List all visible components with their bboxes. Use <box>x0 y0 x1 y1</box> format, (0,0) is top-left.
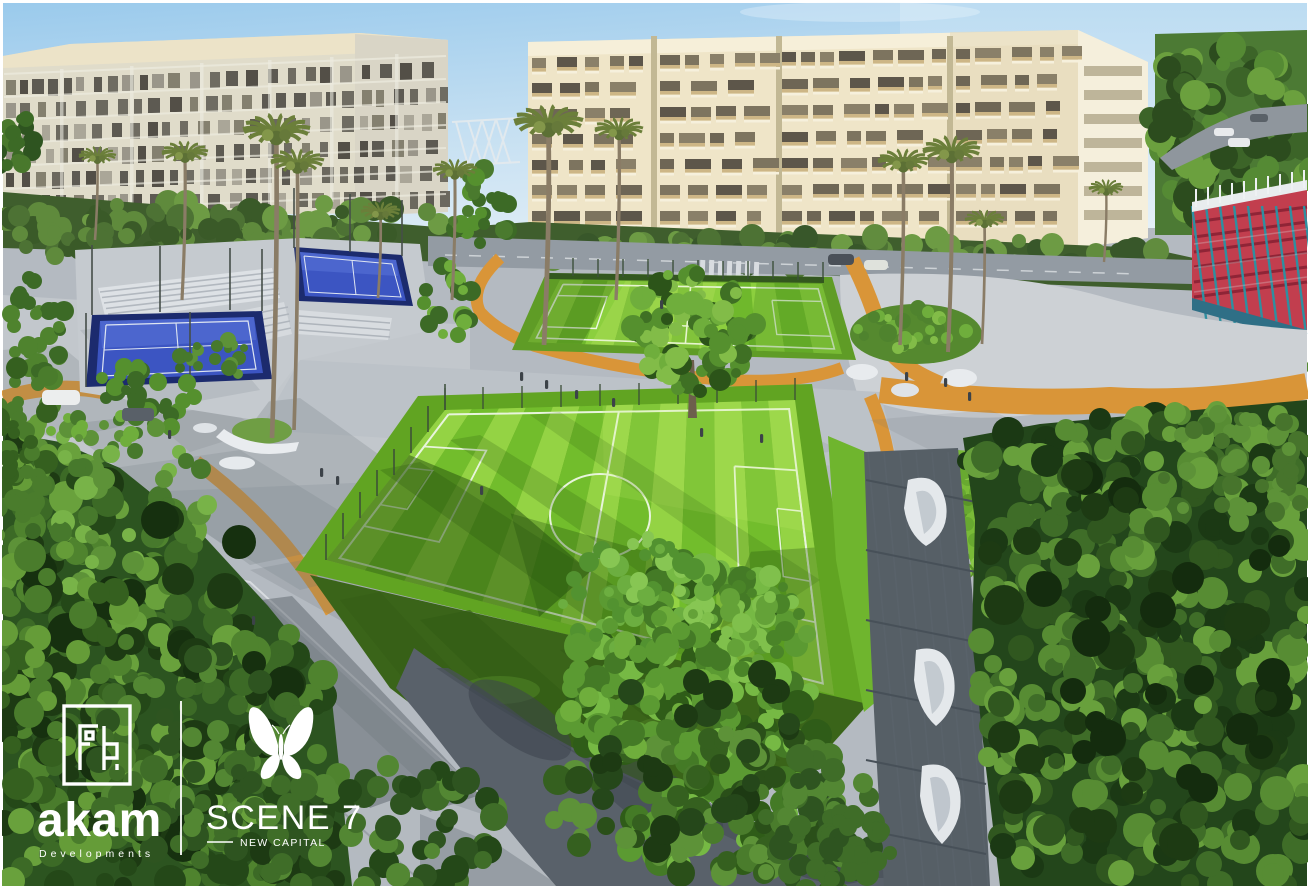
svg-text:Developments: Developments <box>39 848 154 860</box>
svg-text:akam: akam <box>37 794 162 847</box>
svg-text:NEW CAPITAL: NEW CAPITAL <box>240 837 326 849</box>
svg-text:SCENE 7: SCENE 7 <box>206 799 363 837</box>
